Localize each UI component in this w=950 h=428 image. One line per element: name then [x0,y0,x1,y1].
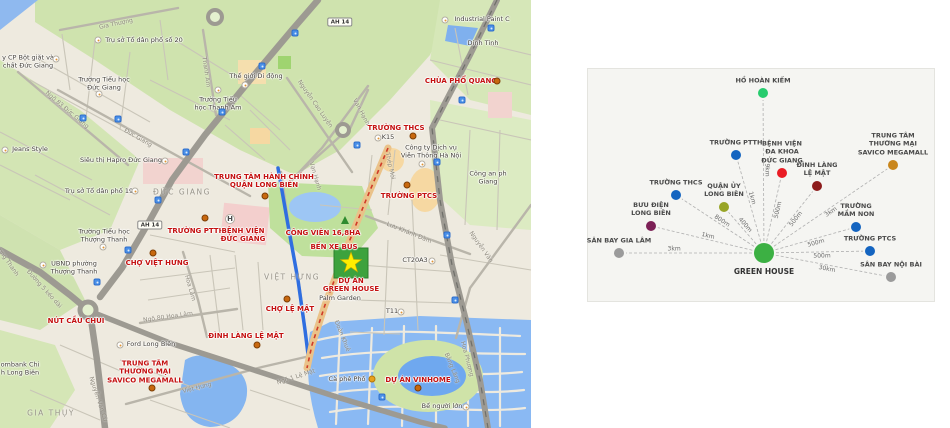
st-thuong-thanh-line: Thượng Thanh [0,238,20,277]
bus-stop-icon [155,197,162,204]
bus-stop-icon [94,279,101,286]
center-label-green-house: GREEN HOUSE [734,267,794,276]
st-van-hanh-line: Vạn Hạnh [351,97,371,126]
poi-ford-long-bien-line: Ford Long Biên [127,341,175,349]
st-thuong-thanh: Thượng Thanh [0,238,20,277]
poi-ben-xe-bus-line: BẾN XE BUS [310,243,357,251]
poi-cho-le-mat: CHỢ LỆ MẬT [266,305,314,313]
poi-ca-phe-pho-line: Cà phê Phố [329,376,366,384]
st-nguyen-cao-luyen-line: Nguyễn Cao Luyện [296,79,334,129]
marker-truong-ptth [202,215,209,222]
st-ngo-83: Ngõ 83 Đức Giang [44,90,90,131]
poi-jeans-style-line: Jeans Style [12,146,48,154]
area-viet-hung: VIỆT HƯNG [264,274,320,283]
st-doan-khue: Đoàn Khuê [333,319,352,352]
st-van-hanh: Vạn Hạnh [351,97,371,126]
st-bang-lang: Bằng Lăng [443,352,462,384]
marker-savico [149,385,156,392]
node-label-san-bay-gia-lam: SÂN BAY GIA LÂM [587,237,651,245]
st-hoa-phuong-line: Hoa Phượng [459,341,475,378]
poi-bank-long-bien-line: ombank Chi [1,361,40,369]
route-badge-ah14: AH 14 [327,18,352,27]
node-dot-quan-uy-long-bien [719,202,729,212]
st-duc-giang: Đức Giang [123,127,154,149]
bus-stop-icon [379,394,386,401]
poi-savico-megamall-map: TRUNG TÂMTHƯƠNG MẠISAVICO MEGAMALL [107,360,183,385]
node-label-trung-tam-thuong-mai-savico-megamall: TRUNG TÂMTHƯƠNG MẠISAVICO MEGAMALL [858,132,928,157]
poi-k15-line: K15 [382,134,395,142]
hospital-icon: H [225,214,235,224]
poi-be-nguoi-lon: Bể người lớn [422,403,463,411]
st-duc-giang-line: Đức Giang [123,127,154,149]
marker-vinhome [415,385,422,392]
center-dot-green-house [754,243,774,263]
poi-icon [215,87,222,94]
poi-to-dan-pho-20: Trụ sở Tổ dân phố số 20 [105,37,183,45]
st-ngo-80-hoa-lam-line: Ngõ 80 Hoa Lâm [143,310,194,324]
poi-jeans-style: Jeans Style [12,146,48,154]
node-dot-buu-dien-long-bien [646,221,656,231]
route-badge-ah14: AH 14 [137,221,162,230]
poi-icon [100,244,107,251]
poi-cho-viet-hung: CHỢ VIỆT HƯNG [126,259,189,267]
poi-ct20a3-line: CT20A3 [402,257,427,265]
poi-icon [162,158,169,165]
poi-k15: K15 [382,134,395,142]
poi-bank-long-bien: ombank Chih Long Biên [1,361,40,376]
poi-cong-an-line: Giang [469,178,506,186]
poi-ct20a3: CT20A3 [402,257,427,265]
st-ngo-80-hoa-lam: Ngõ 80 Hoa Lâm [143,310,194,324]
poi-cho-viet-hung-line: CHỢ VIỆT HƯNG [126,259,189,267]
node-dot-dinh-lang-le-mat [812,181,822,191]
node-label-san-bay-noi-bai-line: SÂN BAY NỘI BÀI [860,261,922,269]
poi-truong-tieu-hoc-thuong-thanh: Trường Tiểu họcThượng Thanh [78,228,130,243]
poi-ca-phe-pho: Cà phê Phố [329,376,366,384]
st-nguyen-cao-luyen: Nguyễn Cao Luyện [296,79,334,129]
st-duong-5: Đường 5 kéo dài [25,268,63,309]
poi-ford-long-bien: Ford Long Biên [127,341,175,349]
node-dot-truong-thcs [671,190,681,200]
node-label-trung-tam-thuong-mai-savico-megamall-line: SAVICO MEGAMALL [858,149,928,157]
poi-icon [419,161,426,168]
st-ngo-83-line: Ngõ 83 Đức Giang [44,90,90,131]
bus-stop-icon [219,109,226,116]
marker-dinh-lang-le-mat [254,342,261,349]
node-label-truong-ptth: TRƯỜNG PTTH [710,139,763,147]
node-dot-truong-mam-non [851,222,861,232]
area-viet-hung-line: VIỆT HƯNG [264,274,320,283]
node-label-dinh-lang-le-mat: ĐÌNH LÀNGLỆ MẬT [797,161,838,178]
poi-dinh-tinh-line: Dinh Tinh [468,40,499,48]
st-thanh-am-line: Thanh Am [200,56,211,87]
node-label-truong-ptcs-line: TRƯỜNG PTCS [844,235,896,243]
marker-truong-ptcs [404,182,411,189]
st-viet-hung: Việt Hưng [182,381,212,395]
node-label-ho-hoan-kiem-line: HỒ HOÀN KIẾM [735,77,790,85]
node-label-quan-uy-long-bien-line: LONG BIÊN [704,191,744,199]
marker-truong-thcs [410,133,417,140]
marker-chua-pho-quang [494,78,501,85]
poi-trung-tam-hanh-chinh-line: TRUNG TÂM HÀNH CHÍNH [214,173,314,181]
st-hoa-lam-line: Hoa Lâm [183,274,197,302]
st-ngo-1-le-mat: Ngõ 1 Lệ Mật [276,367,316,386]
poi-icon [463,404,470,411]
poi-du-an-green-house-line: GREEN HOUSE [323,285,379,293]
poi-savico-megamall-map-line: THƯƠNG MẠI [107,368,183,376]
screenshot-root: CHÙA PHỔ QUANGTRƯỜNG THCSTRƯỜNG PTCSTRUN… [0,0,950,428]
poi-to-dan-pho-20-line: Trụ sở Tổ dân phố số 20 [105,37,183,45]
poi-dinh-tinh: Dinh Tinh [468,40,499,48]
poi-t11: T11 [386,308,398,316]
node-label-truong-mam-non-line: MẦM NON [838,211,875,219]
poi-ubnd-thuong-thanh-line: Thượng Thanh [51,268,98,276]
node-dot-san-bay-noi-bai [886,272,896,282]
node-label-trung-tam-thuong-mai-savico-megamall-line: TRUNG TÂM [858,132,928,140]
poi-du-an-green-house-line: DỰ ÁN [323,277,379,285]
poi-du-an-vinhome: DỰ ÁN VINHOME [385,376,450,384]
poi-nut-cau-chui: NÚT CẦU CHUI [48,317,105,325]
poi-trung-tam-hanh-chinh: TRUNG TÂM HÀNH CHÍNHQUẬN LONG BIÊN [214,173,314,190]
poi-dinh-lang-le-mat-map: ĐÌNH LÀNG LỆ MẬT [208,332,283,340]
st-nguyen-van-cu-line: Nguyễn Văn Cừ [87,376,108,422]
poi-vien-thong-ha-noi-line: Viễn Thông Hà Nội [401,152,461,160]
st-doan-khue-line: Đoàn Khuê [333,319,352,352]
poi-truong-ptth-map-line: TRƯỜNG PTTH [168,227,225,235]
node-dot-truong-ptcs [865,246,875,256]
poi-nut-cau-chui-line: NÚT CẦU CHUI [48,317,105,325]
node-label-truong-ptcs: TRƯỜNG PTCS [844,235,896,243]
node-label-san-bay-noi-bai: SÂN BAY NỘI BÀI [860,261,922,269]
poi-du-an-green-house: DỰ ÁNGREEN HOUSE [323,277,379,294]
poi-truong-tieu-hoc-thanh-am-line: Trường Tiểu [195,96,242,104]
poi-to-dan-pho-19: Trụ sở Tổ dân phố 19 [65,188,133,196]
poi-savico-megamall-map-line: SAVICO MEGAMALL [107,376,183,384]
st-van-hanh-2: Vạn Hạnh [308,161,323,191]
poi-industrial-paint: Industrial Paint C [454,16,509,24]
poi-truong-ptcs-map-line: TRƯỜNG PTCS [381,192,437,200]
poi-cho-le-mat-line: CHỢ LỆ MẬT [266,305,314,313]
poi-truong-tieu-hoc-duc-giang-line: Đức Giang [78,84,130,92]
poi-palm-garden: Palm Garden [319,295,361,303]
poi-truong-tieu-hoc-thuong-thanh-line: Trường Tiểu học [78,228,130,236]
poi-icon [442,17,449,24]
st-duong-5-line: Đường 5 kéo dài [25,268,63,309]
st-van-hanh-2-line: Vạn Hạnh [308,161,323,191]
poi-icon [96,91,103,98]
area-gia-thuy: GIA THỤY [27,410,75,419]
poi-icon [2,147,9,154]
st-viet-hung-line: Việt Hưng [182,381,212,395]
poi-t11-line: T11 [386,308,398,316]
poi-bank-long-bien-line: h Long Biên [1,369,40,377]
poi-industrial-paint-line: Industrial Paint C [454,16,509,24]
poi-trung-tam-hanh-chinh-line: QUẬN LONG BIÊN [214,181,314,189]
node-dot-san-bay-gia-lam [614,248,624,258]
poi-savico-megamall-map-line: TRUNG TÂM [107,360,183,368]
poi-icon [242,82,249,89]
st-bang-lang-line: Bằng Lăng [443,352,462,384]
map-labels-layer: CHÙA PHỔ QUANGTRƯỜNG THCSTRƯỜNG PTCSTRUN… [0,0,531,428]
poi-hapro: Siêu thị Hapro Đức Giang [80,157,162,165]
bus-stop-icon [292,30,299,37]
area-duc-giang-line: ĐỨC GIANG [153,189,211,198]
node-label-benh-vien-da-khoa-duc-giang-line: ĐA KHOA [761,148,802,156]
poi-truong-ptcs-map: TRƯỜNG PTCS [381,192,437,200]
poi-truong-tieu-hoc-thuong-thanh-line: Thượng Thanh [78,236,130,244]
poi-hapro-line: Siêu thị Hapro Đức Giang [80,157,162,165]
st-ngo-1-le-mat-line: Ngõ 1 Lệ Mật [276,367,316,386]
poi-benh-vien-duc-giang: BỆNH VIỆNĐỨC GIANG [221,227,266,244]
poi-chua-pho-quang-line: CHÙA PHỔ QUANG [425,77,497,85]
node-label-ho-hoan-kiem: HỒ HOÀN KIẾM [735,77,790,85]
bus-stop-icon [459,97,466,104]
node-dot-trung-tam-thuong-mai-savico-megamall [888,160,898,170]
poi-ben-xe-bus: BẾN XE BUS [310,243,357,251]
poi-vien-thong-ha-noi-line: Công ty Dịch vụ [401,144,461,152]
poi-chua-pho-quang: CHÙA PHỔ QUANG [425,77,497,85]
node-label-dinh-lang-le-mat-line: LỆ MẬT [797,170,838,178]
bus-stop-icon [488,25,495,32]
poi-the-gioi-di-dong: Thế giới Di động [229,73,282,81]
marker-cho-viet-hung [150,250,157,257]
poi-du-an-vinhome-line: DỰ ÁN VINHOME [385,376,450,384]
poi-truong-tieu-hoc-duc-giang: Trường Tiểu họcĐức Giang [78,76,130,91]
bus-stop-icon [452,297,459,304]
poi-icon [132,188,139,195]
node-dot-benh-vien-da-khoa-duc-giang [777,168,787,178]
marker-cho-le-mat [284,296,291,303]
node-dot-truong-ptth [731,150,741,160]
area-duc-giang: ĐỨC GIANG [153,189,211,198]
poi-icon [40,262,47,269]
bus-stop-icon [115,116,122,123]
st-thanh-am: Thanh Am [200,56,211,87]
distance-label-truong-ptcs: 500m [814,252,831,259]
bus-stop-icon [444,232,451,239]
node-label-truong-mam-non: TRƯỜNGMẦM NON [838,202,875,219]
node-label-truong-thcs: TRƯỜNG THCS [649,179,702,187]
poi-ubnd-thuong-thanh: UBND phườngThượng Thanh [51,260,98,275]
st-luu-khanh-dam-line: Lưu Khánh Đàm [385,221,432,246]
poi-truong-thcs-map: TRƯỜNG THCS [367,124,424,132]
node-label-buu-dien-long-bien-line: LONG BIÊN [631,210,671,218]
poi-cong-an-line: Công an ph [469,170,506,178]
poi-vien-thong-ha-noi: Công ty Dịch vụViễn Thông Hà Nội [401,144,461,159]
distance-label-ho-hoan-kiem: 9km [764,163,771,176]
poi-icon [117,342,124,349]
poi-ubnd-thuong-thanh-line: UBND phường [51,260,98,268]
bus-stop-icon [434,159,441,166]
bus-stop-icon [259,63,266,70]
node-label-truong-thcs-line: TRƯỜNG THCS [649,179,702,187]
poi-palm-garden-line: Palm Garden [319,295,361,303]
poi-icon [95,37,102,44]
poi-cong-vien-168ha-line: CÔNG VIÊN 16,8HA [286,229,361,237]
poi-bot-giat-duc-giang-line: y CP Bột giặt và [2,54,54,62]
st-thep-moi-line: Thép Mới [384,152,397,180]
poi-truong-thcs-map-line: TRƯỜNG THCS [367,124,424,132]
poi-be-nguoi-lon-line: Bể người lớn [422,403,463,411]
poi-truong-ptth-map: TRƯỜNG PTTH [168,227,225,235]
bus-stop-icon [183,149,190,156]
cafe-icon [369,376,376,383]
map-panel[interactable]: CHÙA PHỔ QUANGTRƯỜNG THCSTRƯỜNG PTCSTRUN… [0,0,531,428]
poi-bot-giat-duc-giang-line: chất Đức Giang [2,62,54,70]
area-gia-thuy-line: GIA THỤY [27,410,75,419]
node-label-truong-ptth-line: TRƯỜNG PTTH [710,139,763,147]
poi-icon [429,258,436,265]
st-nguyen-van-cu: Nguyễn Văn Cừ [87,376,108,422]
poi-dinh-lang-le-mat-map-line: ĐÌNH LÀNG LỆ MẬT [208,332,283,340]
poi-truong-tieu-hoc-duc-giang-line: Trường Tiểu học [78,76,130,84]
st-gia-thuong-line: Gia Thượng [98,17,133,31]
poi-bot-giat-duc-giang: y CP Bột giặt vàchất Đức Giang [2,54,54,69]
distance-label-san-bay-gia-lam: 3km [668,246,681,253]
st-gia-thuong: Gia Thượng [98,17,133,31]
st-nguyen-van-line: Nguyễn Văn [468,230,495,264]
node-label-benh-vien-da-khoa-duc-giang-line: BỆNH VIỆN [761,140,802,148]
poi-cong-vien-168ha: CÔNG VIÊN 16,8HA [286,229,361,237]
bus-stop-icon [80,115,87,122]
node-label-trung-tam-thuong-mai-savico-megamall-line: THƯƠNG MẠI [858,140,928,148]
bus-stop-icon [354,142,361,149]
poi-icon [398,309,405,316]
poi-to-dan-pho-19-line: Trụ sở Tổ dân phố 19 [65,188,133,196]
bus-stop-icon [125,247,132,254]
poi-benh-vien-duc-giang-line: ĐỨC GIANG [221,235,266,243]
poi-the-gioi-di-dong-line: Thế giới Di động [229,73,282,81]
poi-icon [375,135,382,142]
st-luu-khanh-dam: Lưu Khánh Đàm [385,221,432,246]
st-nguyen-van: Nguyễn Văn [468,230,495,264]
poi-icon [53,56,60,63]
node-label-san-bay-gia-lam-line: SÂN BAY GIA LÂM [587,237,651,245]
node-label-quan-uy-long-bien: QUẬN ỦYLONG BIÊN [704,182,744,199]
node-dot-ho-hoan-kiem [758,88,768,98]
st-hoa-lam: Hoa Lâm [183,274,197,302]
poi-benh-vien-duc-giang-line: BỆNH VIỆN [221,227,266,235]
node-label-buu-dien-long-bien: BƯU ĐIỆNLONG BIÊN [631,201,671,218]
st-thep-moi: Thép Mới [384,152,397,180]
marker-trung-tam-hanh-chinh [262,193,269,200]
st-hoa-phuong: Hoa Phượng [459,341,475,378]
poi-cong-an: Công an phGiang [469,170,506,185]
